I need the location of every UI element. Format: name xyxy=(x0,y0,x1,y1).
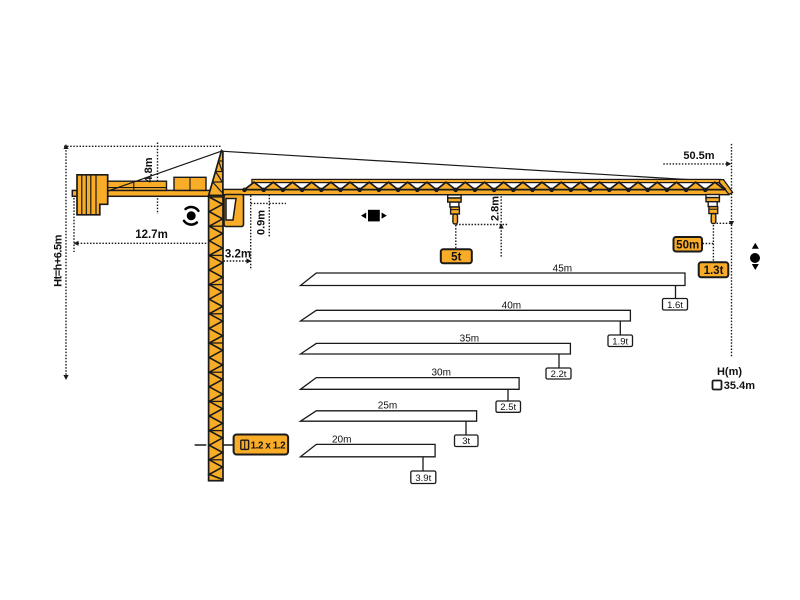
svg-text:0.9m: 0.9m xyxy=(256,210,268,235)
svg-text:35.4m: 35.4m xyxy=(724,380,755,392)
svg-text:25m: 25m xyxy=(378,401,397,412)
svg-text:50m: 50m xyxy=(676,240,699,252)
svg-text:1.2 x 1.2: 1.2 x 1.2 xyxy=(251,441,286,452)
svg-text:12.7m: 12.7m xyxy=(135,229,168,241)
svg-text:50.5m: 50.5m xyxy=(683,150,714,162)
svg-text:5t: 5t xyxy=(451,252,461,264)
svg-text:20m: 20m xyxy=(332,434,351,445)
svg-text:1.6t: 1.6t xyxy=(667,300,683,311)
svg-text:40m: 40m xyxy=(502,300,521,311)
svg-text:Ht=h+6.5m: Ht=h+6.5m xyxy=(53,234,65,286)
svg-text:1.3t: 1.3t xyxy=(704,265,724,277)
svg-text:4.8m: 4.8m xyxy=(143,157,155,182)
svg-text:3t: 3t xyxy=(462,436,470,447)
svg-text:35m: 35m xyxy=(460,333,479,344)
svg-text:2.8m: 2.8m xyxy=(490,196,502,221)
svg-text:1.9t: 1.9t xyxy=(612,336,628,347)
svg-text:3.9t: 3.9t xyxy=(415,473,431,484)
svg-text:45m: 45m xyxy=(553,263,572,274)
svg-text:2.2t: 2.2t xyxy=(551,369,567,380)
svg-text:H(m): H(m) xyxy=(717,366,742,378)
svg-text:2.5t: 2.5t xyxy=(500,402,516,413)
svg-text:30m: 30m xyxy=(431,367,450,378)
svg-text:3.2m: 3.2m xyxy=(225,249,251,261)
